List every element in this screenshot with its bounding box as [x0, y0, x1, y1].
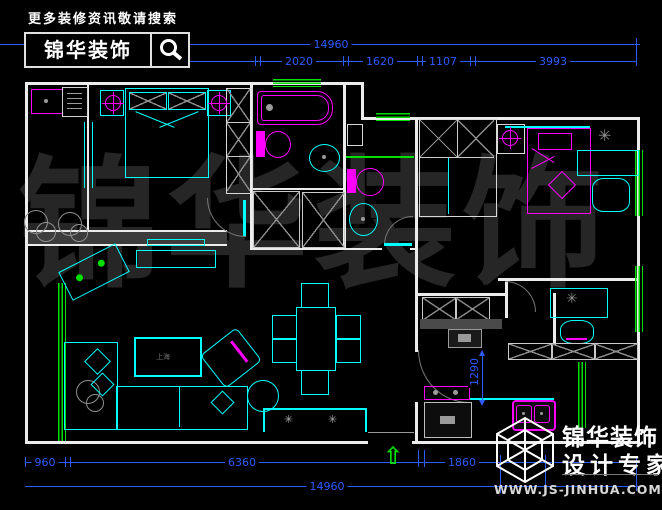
sideboard [263, 408, 367, 432]
dim-label-bottom-total: 14960 [307, 480, 348, 493]
dim-tick [470, 56, 471, 66]
wall [498, 278, 639, 281]
entrance-arrow-icon: ⇧ [383, 444, 403, 468]
armchair [200, 327, 262, 388]
dining-table [296, 307, 336, 371]
dining-chair [301, 283, 329, 308]
pillow [129, 92, 167, 110]
sliding-door-laundry [84, 122, 93, 188]
tv-console [136, 250, 216, 268]
ceiling-light-icon [105, 95, 121, 111]
logo-url-text: WWW.JS-JINHUA.COM [494, 482, 662, 497]
desk-chair [592, 178, 630, 212]
toilet-tank [347, 169, 356, 193]
window-study [635, 266, 644, 332]
tv [147, 239, 205, 246]
dim-label: 1620 [363, 55, 397, 68]
wardrobe-bedroom2 [419, 119, 497, 217]
dim-label: 1860 [445, 456, 479, 469]
desk-plant-icon: ✳ [598, 128, 611, 144]
window-bathroom2 [376, 113, 410, 122]
dim-line-kitchen-vertical [482, 352, 483, 404]
dim-tick [343, 56, 344, 66]
dining-chair [336, 339, 361, 363]
door-leaf-bedroom1 [243, 200, 246, 236]
toilet [356, 168, 384, 196]
kitchen-cabinet [455, 297, 490, 321]
kitchen-cabinet [422, 297, 457, 321]
wall [250, 248, 382, 250]
kitchen-appliance [424, 402, 472, 438]
search-button[interactable] [150, 32, 190, 68]
dim-label: 3993 [536, 55, 570, 68]
dim-tick [65, 457, 66, 467]
cad-floorplan-canvas: 锦华装饰 14960 1560 3820 2020 1620 1107 3993… [0, 0, 662, 510]
shower-partition [346, 156, 414, 158]
pillow [538, 133, 572, 150]
dim-label: 2020 [282, 55, 316, 68]
search-hint-text: 更多装修资讯敬请搜索 [28, 8, 178, 27]
stove [424, 386, 470, 400]
wall [415, 248, 418, 352]
door-leaf-bathroom2 [384, 243, 412, 246]
wall [25, 441, 368, 444]
dim-arrow-down [479, 400, 485, 406]
wall [361, 82, 364, 120]
low-cabinet [508, 343, 553, 360]
dim-label-kitchen-opening: 1290 [468, 356, 481, 388]
search-icon-handle [173, 52, 182, 61]
wardrobe-bedroom1 [226, 88, 253, 194]
entrance-threshold [368, 432, 414, 433]
wall [250, 188, 346, 190]
hall-closet [253, 191, 300, 248]
laundry-sink [31, 89, 63, 114]
blanket-fold [531, 156, 554, 169]
wall [415, 293, 507, 296]
ceiling-light-icon [502, 130, 518, 146]
bathroom-sink [349, 203, 378, 236]
duct-box [347, 124, 363, 146]
shower-tile [302, 192, 345, 248]
oven [448, 329, 482, 348]
sideboard-star-icon: ✳ [328, 414, 337, 425]
laundry-rack [62, 87, 88, 117]
dining-chair [301, 370, 329, 395]
study-chair [560, 320, 594, 344]
plant [36, 222, 56, 242]
dim-tick [418, 450, 419, 467]
low-cabinet [551, 343, 596, 360]
kitchen-counter-band [420, 319, 502, 329]
wall [415, 402, 418, 444]
dining-chair [336, 315, 361, 339]
dim-label: 6360 [225, 456, 259, 469]
desk-bedroom2 [577, 150, 639, 176]
wall [415, 117, 418, 251]
toilet [265, 131, 291, 158]
dim-tick [25, 457, 26, 467]
plant [70, 224, 88, 242]
dim-tick [255, 56, 256, 66]
cushion [548, 171, 576, 199]
dining-chair [272, 315, 297, 339]
company-logo: 锦华装饰 设计专家 WWW.JS-JINHUA.COM [492, 412, 660, 508]
bathtub [257, 91, 333, 125]
bathroom-sink [309, 144, 340, 172]
drain-dot [266, 104, 273, 111]
dim-label: 960 [32, 456, 59, 469]
blanket-fold [135, 111, 174, 128]
double-bed [125, 88, 209, 178]
dim-label-top-total: 14960 [311, 38, 352, 51]
search-brand-box[interactable]: 锦华装饰 [24, 32, 152, 68]
ceiling-light-icon [211, 95, 227, 111]
low-cabinet [594, 343, 638, 360]
blanket-fold [159, 111, 198, 128]
toilet-tank [256, 131, 265, 157]
dim-tick [636, 38, 637, 66]
coffee-table-label: 上海 [156, 352, 170, 362]
window-bathroom1 [273, 79, 321, 87]
cube-logo-icon [494, 416, 556, 484]
wall [25, 82, 28, 444]
logo-divider [562, 474, 658, 475]
sideboard-star-icon: ✳ [284, 414, 293, 425]
pillow [168, 92, 206, 110]
dining-chair [272, 339, 297, 363]
desk-study [550, 288, 608, 318]
dim-label: 1107 [426, 55, 460, 68]
drain-dot [44, 99, 48, 103]
dim-tick [417, 56, 418, 66]
desk-plant-icon: ✳ [566, 292, 578, 306]
